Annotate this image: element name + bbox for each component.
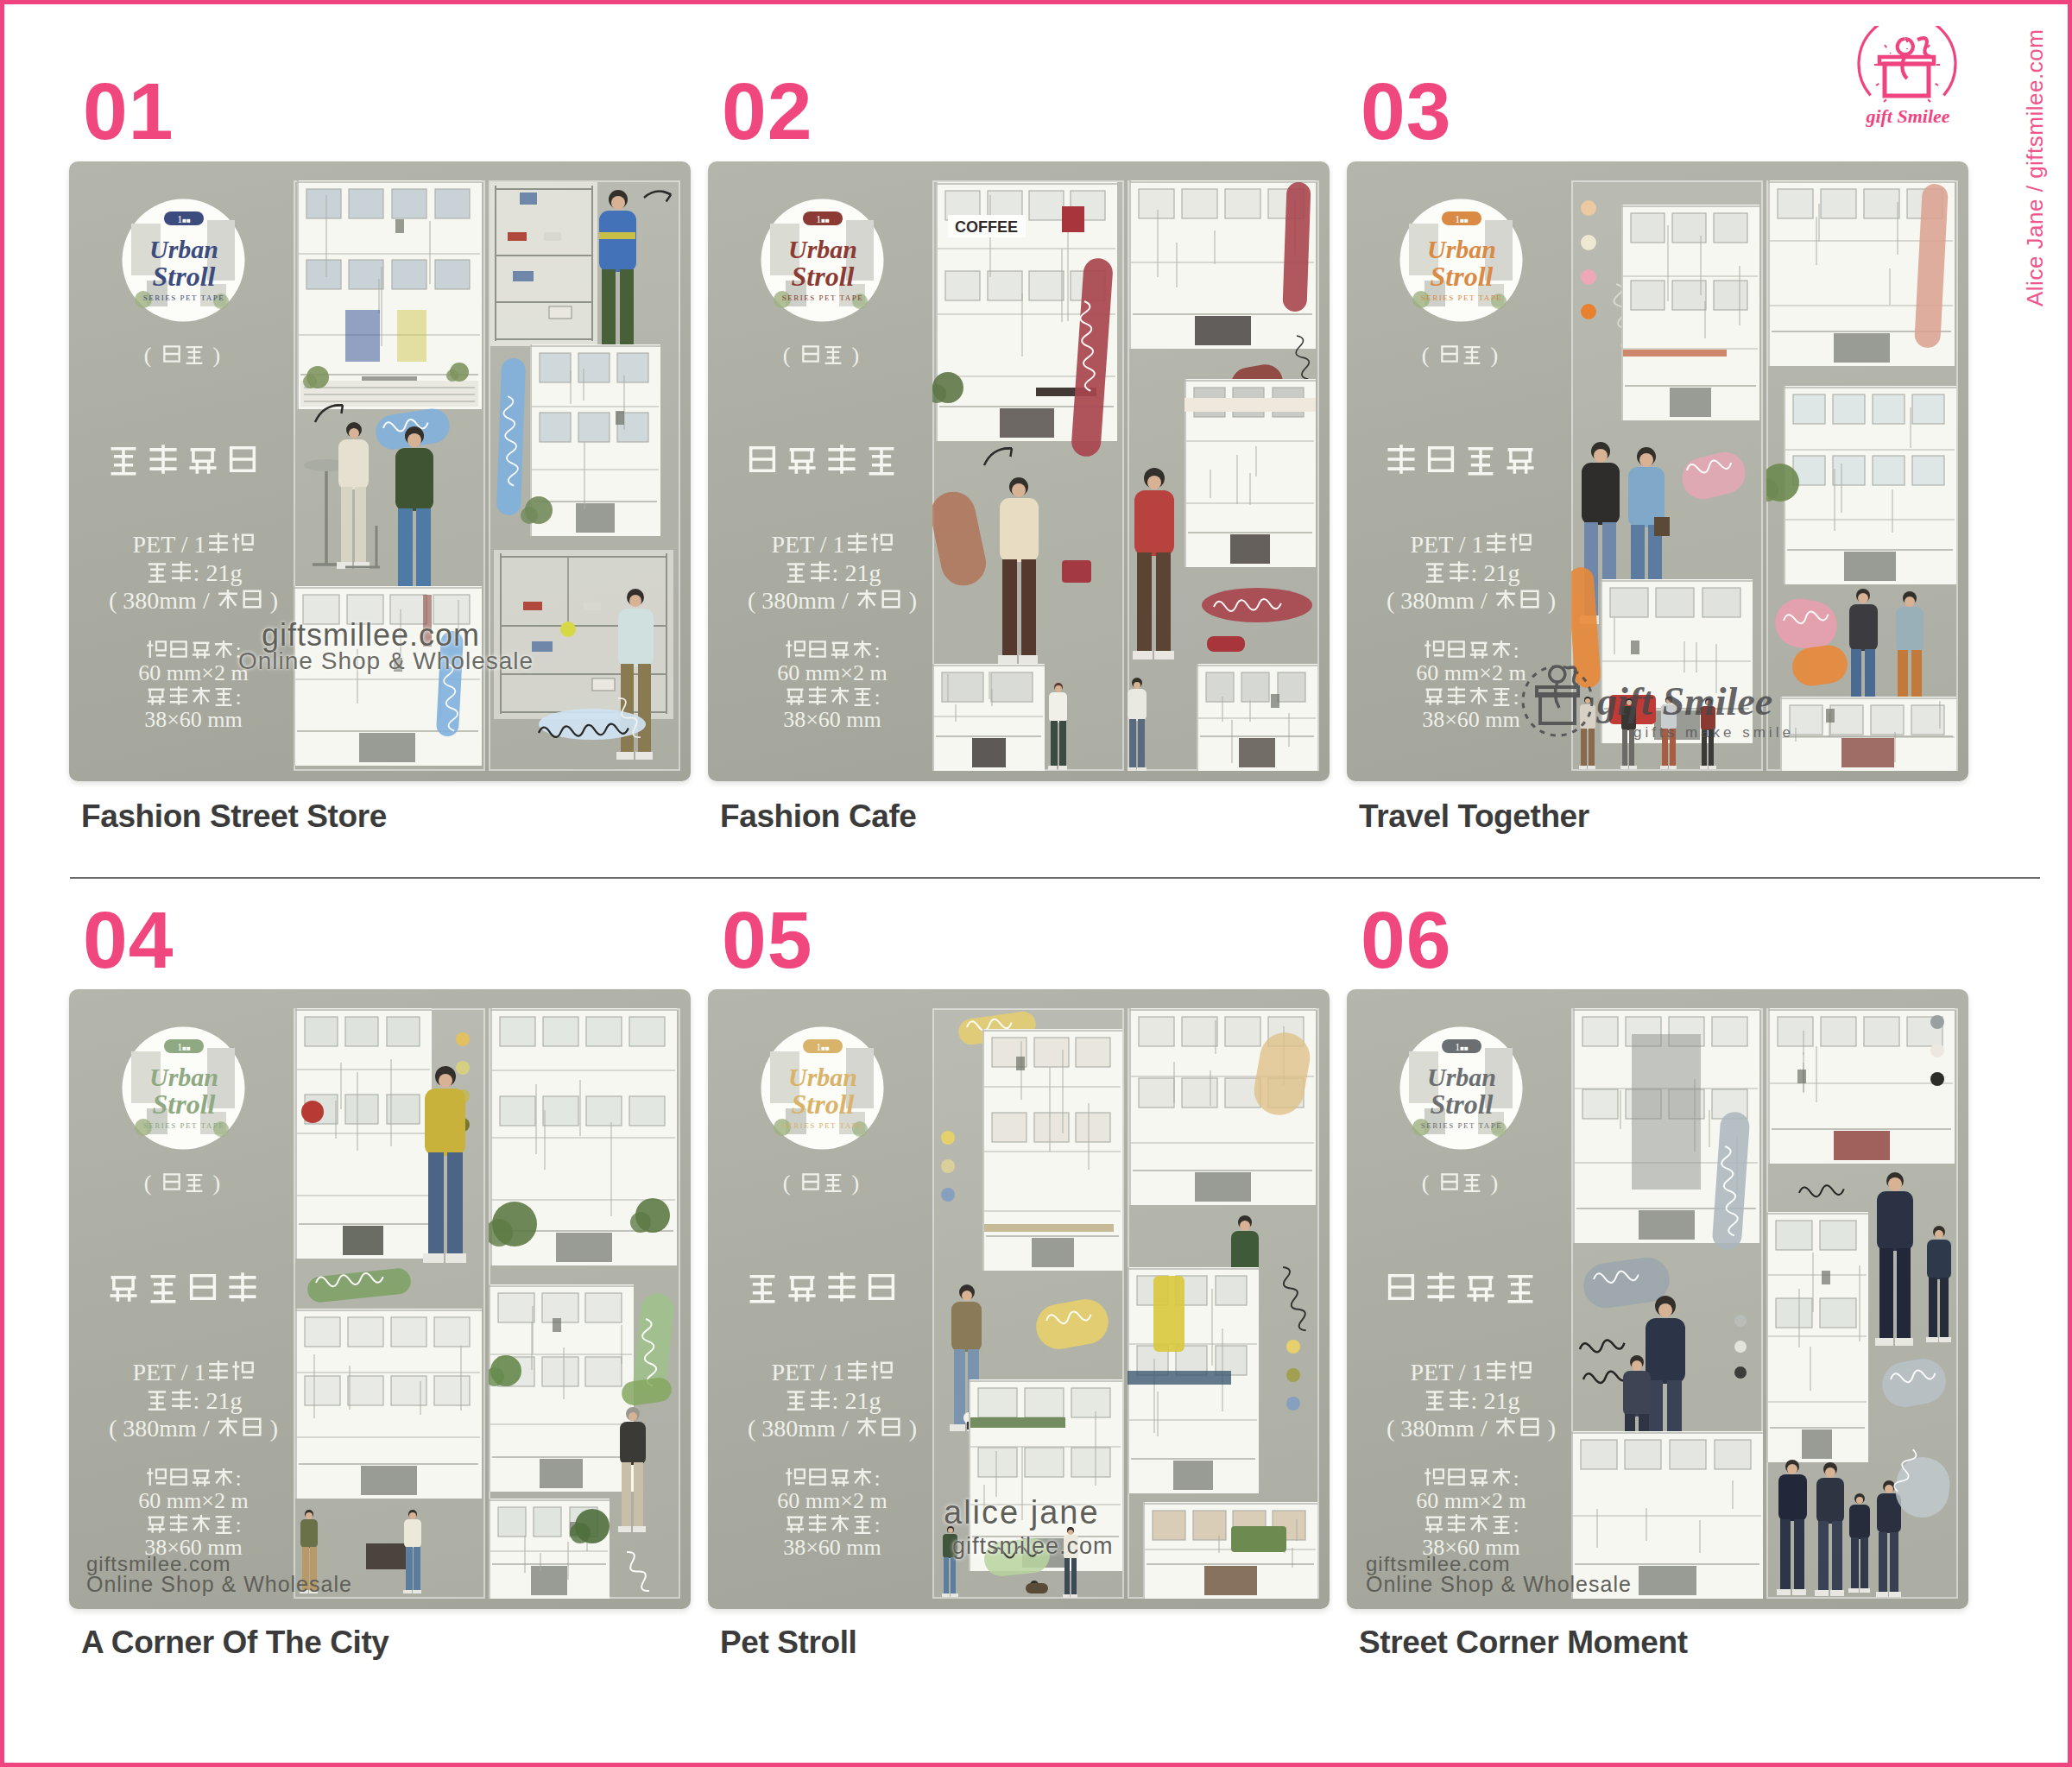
svg-text:Stroll: Stroll (1431, 1089, 1494, 1120)
svg-text:gift Smilee: gift Smilee (1865, 105, 1949, 127)
svg-text:SERIES PET TAPE: SERIES PET TAPE (143, 1121, 224, 1130)
svg-text:SERIES PET TAPE: SERIES PET TAPE (1421, 1121, 1502, 1130)
svg-text:Urban: Urban (149, 235, 218, 263)
svg-text:SERIES PET TAPE: SERIES PET TAPE (782, 1121, 863, 1130)
svg-text:Urban: Urban (788, 235, 857, 263)
svg-text:SERIES PET TAPE: SERIES PET TAPE (782, 293, 863, 302)
svg-text:Stroll: Stroll (1431, 261, 1494, 292)
svg-text:Urban: Urban (1427, 1063, 1496, 1091)
svg-text:Stroll: Stroll (792, 1089, 855, 1120)
svg-text:gifts make smile: gifts make smile (1633, 724, 1794, 741)
svg-text:Stroll: Stroll (153, 261, 216, 292)
svg-text:Urban: Urban (149, 1063, 218, 1091)
svg-text:SERIES PET TAPE: SERIES PET TAPE (143, 293, 224, 302)
svg-text:gift Smilee: gift Smilee (1596, 679, 1772, 723)
svg-text:SERIES PET TAPE: SERIES PET TAPE (1421, 293, 1502, 302)
svg-text:Urban: Urban (1427, 235, 1496, 263)
svg-text:COFFEE: COFFEE (955, 218, 1018, 236)
svg-text:Stroll: Stroll (792, 261, 855, 292)
svg-text:Urban: Urban (788, 1063, 857, 1091)
svg-text:Stroll: Stroll (153, 1089, 216, 1120)
